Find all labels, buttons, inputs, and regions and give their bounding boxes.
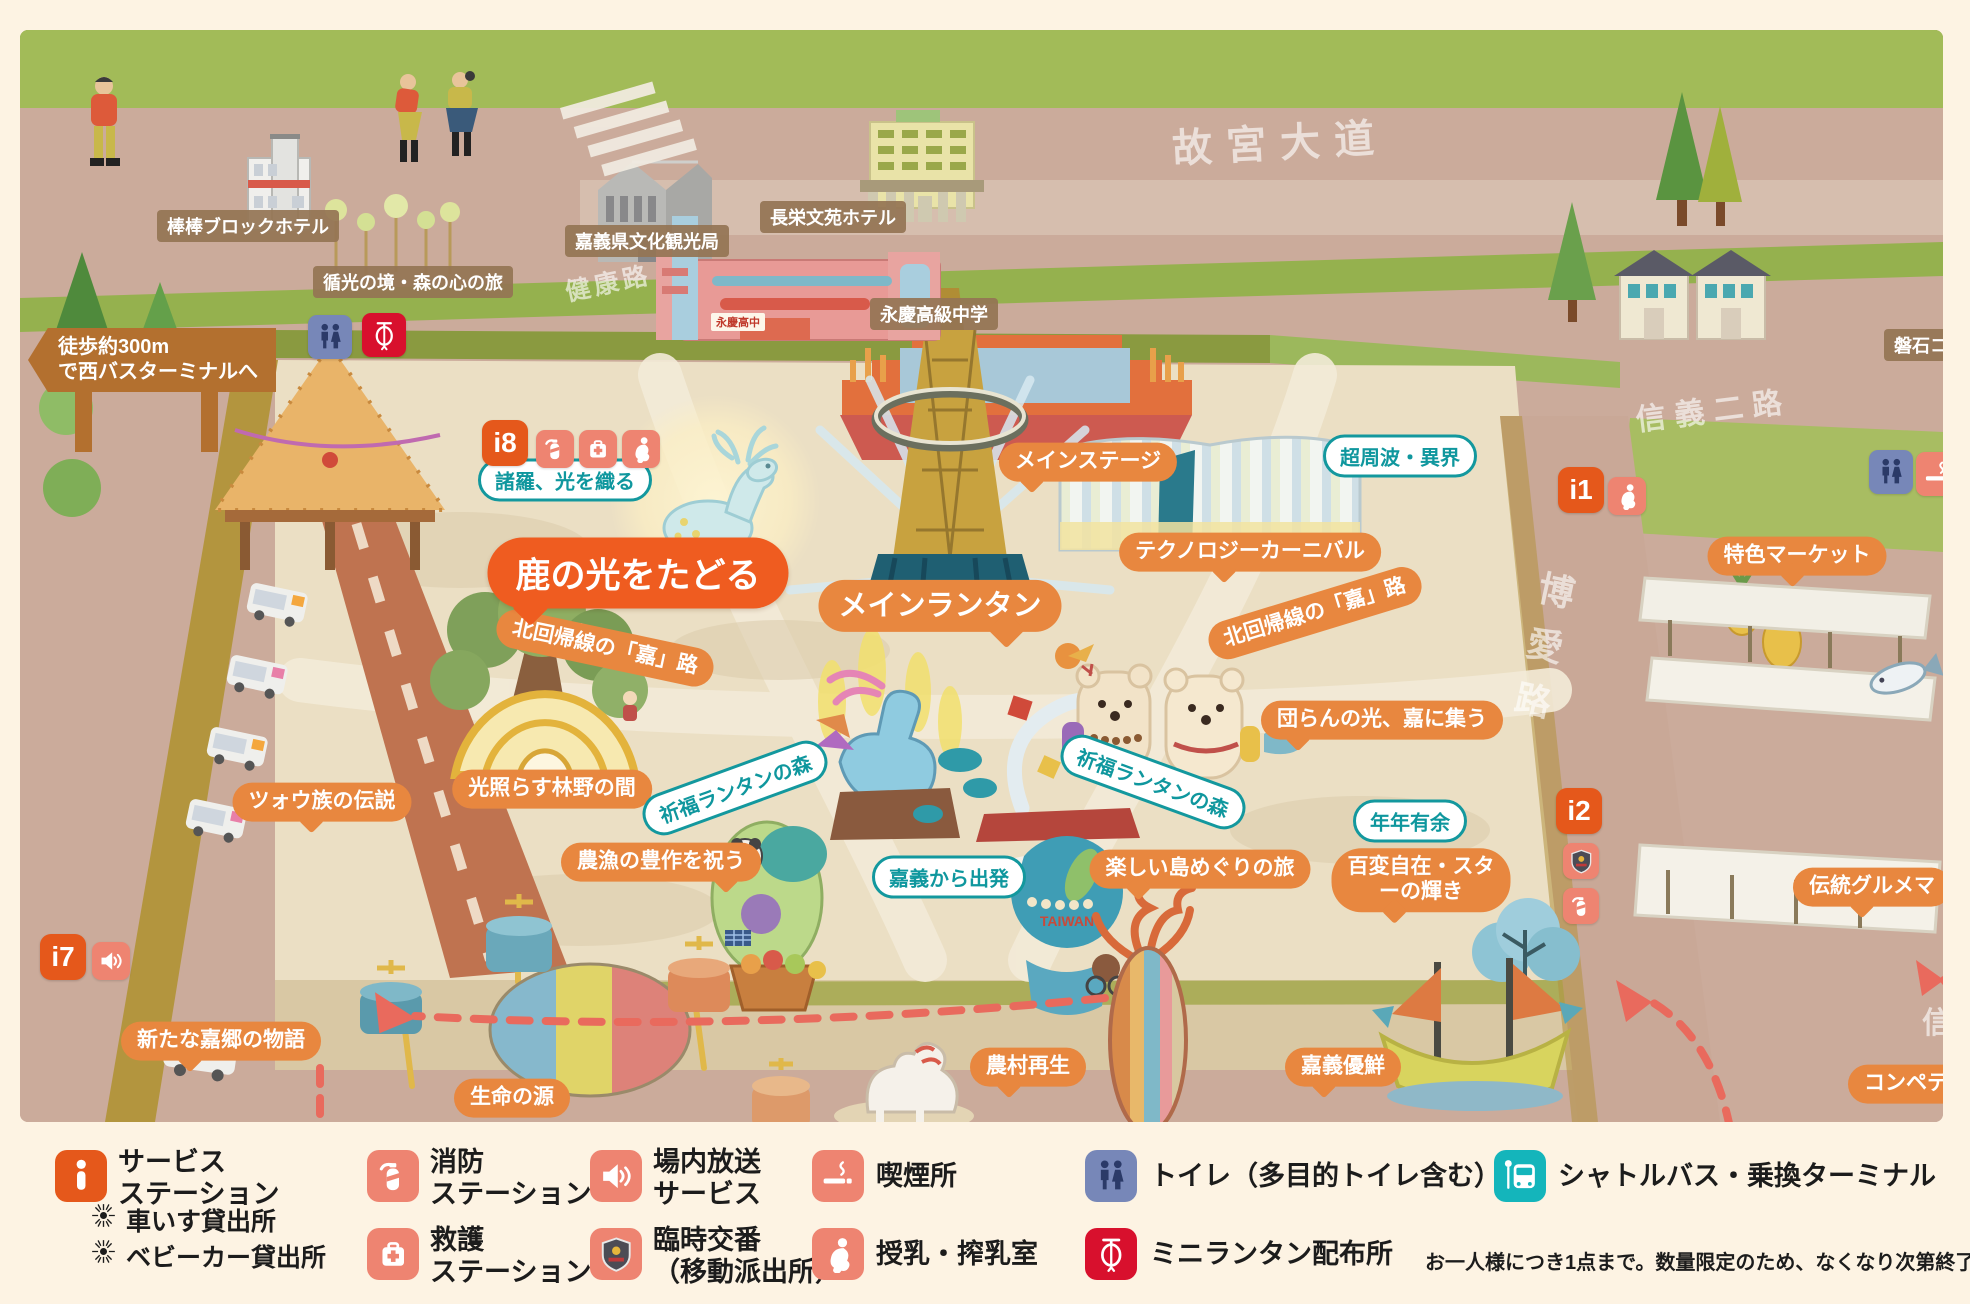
street-name-partial-right: 信	[1922, 998, 1943, 1042]
toilet-icon	[1869, 450, 1913, 494]
broadcast-speaker-icon	[92, 942, 130, 980]
fire-extinguisher-icon	[536, 430, 574, 468]
label-departure-from-chiayi: 嘉義から出発	[872, 856, 1026, 899]
school-rooftop-sign: 永慶高中	[711, 313, 765, 331]
smoking-area-legend-icon	[812, 1150, 864, 1202]
label-rural-rebirth: 農村再生	[970, 1048, 1086, 1087]
label-harvest-celebration: 農漁の豊作を祝う	[561, 843, 761, 882]
street-name-gugong-avenue: 故宮大道	[1171, 105, 1390, 174]
bus-sign-line1: 徒歩約300m	[58, 335, 276, 360]
label-tsou-legend: ツォウ族の伝説	[233, 783, 412, 822]
service-station-icon	[55, 1150, 107, 1202]
map-ground-art: TAIWAN	[20, 30, 1943, 1122]
police-box-icon	[1563, 843, 1599, 879]
legend-mini-lantern: ミニランタン配布所	[1150, 1238, 1393, 1270]
mini-lantern-icon	[362, 313, 406, 357]
legend-smoking-area: 喫煙所	[876, 1160, 957, 1192]
bus-sign-line2: で西バスターミナルへ	[58, 360, 276, 385]
temporary-police-box-icon	[590, 1228, 642, 1280]
bus-terminal-direction-sign: 徒歩約300m で西バスターミナルへ	[28, 328, 276, 392]
taiwan-globe-text: TAIWAN	[1040, 913, 1094, 929]
label-chiayi-yuxian: 嘉義優鮮	[1285, 1048, 1401, 1087]
label-ultra-frequency: 超周波・異界	[1323, 435, 1477, 478]
label-banseki-partial: 磐石コ	[1884, 329, 1943, 361]
legend-wheelchair-rental: 車いす貸出所	[126, 1202, 276, 1238]
info-station-badge-i8: i8	[482, 420, 528, 466]
label-competition: コンペテ	[1848, 1065, 1943, 1104]
label-culture-tourism-bureau: 嘉義県文化観光局	[565, 225, 729, 257]
legend-mini-lantern-note: お一人様につき1点まで。数量限定のため、なくなり次第終了となります。	[1425, 1246, 1970, 1275]
shuttle-bus-icon	[1494, 1150, 1546, 1202]
info-station-badge-i2: i2	[1556, 788, 1602, 834]
nursing-room-icon	[1608, 477, 1646, 515]
label-yearly-abundance: 年年有余	[1353, 800, 1467, 843]
mini-lantern-legend-icon	[1085, 1228, 1137, 1280]
fire-station-icon	[367, 1150, 419, 1202]
label-source-of-life: 生命の源	[454, 1079, 570, 1118]
broadcast-service-icon	[590, 1150, 642, 1202]
label-bangbang-hotel: 棒棒ブロックホテル	[157, 210, 339, 242]
smoking-area-icon	[1916, 452, 1943, 496]
nursing-room-icon	[622, 430, 660, 468]
label-light-forest-journey: 循光の境・森の心の旅	[313, 266, 513, 298]
legend-rescue-station: 救護 ステーション	[430, 1224, 591, 1289]
toilet-icon	[308, 315, 352, 359]
label-star-brilliance: 百変自在・スタ ーの輝き	[1332, 848, 1511, 912]
first-aid-icon	[579, 430, 617, 468]
legend-nursing-room: 授乳・搾乳室	[876, 1238, 1038, 1270]
legend-stroller-rental: ベビーカー貸出所	[126, 1238, 326, 1274]
label-reunion-light: 団らんの光、嘉に集う	[1261, 701, 1503, 740]
sign-leg	[201, 386, 218, 452]
label-yongqing-high-school: 永慶高級中学	[870, 298, 998, 330]
festival-map-page: TAIWAN	[0, 0, 1970, 1304]
info-station-badge-i1: i1	[1558, 467, 1604, 513]
stroller-rental-bullet-icon	[90, 1238, 117, 1265]
wheelchair-rental-bullet-icon	[90, 1202, 117, 1229]
fire-extinguisher-icon	[1563, 888, 1599, 924]
nursing-room-legend-icon	[812, 1228, 864, 1280]
label-island-tour: 楽しい島めぐりの旅	[1090, 850, 1311, 889]
rescue-station-icon	[367, 1228, 419, 1280]
map-legend: サービス ステーション 車いす貸出所 ベビーカー貸出所 消防 ステーション 救護…	[0, 1122, 1970, 1304]
illustrated-festival-map: TAIWAN	[20, 30, 1943, 1122]
label-traditional-gourmet: 伝統グルメマ	[1793, 868, 1943, 907]
label-new-kakyo-story: 新たな嘉郷の物語	[121, 1022, 321, 1061]
label-main-lantern: メインランタン	[818, 580, 1061, 632]
info-station-badge-i7: i7	[40, 934, 86, 980]
label-main-stage: メインステージ	[999, 443, 1177, 482]
label-technology-carnival: テクノロジーカーニバル	[1119, 533, 1381, 572]
legend-broadcast-service: 場内放送 サービス	[653, 1146, 761, 1211]
legend-toilet: トイレ（多目的トイレ含む）	[1150, 1160, 1501, 1192]
toilet-legend-icon	[1085, 1150, 1137, 1202]
sign-leg	[75, 386, 92, 452]
legend-fire-station: 消防 ステーション	[430, 1146, 591, 1211]
label-follow-deer-light: 鹿の光をたどる	[487, 538, 788, 609]
label-light-forest-hall: 光照らす林野の間	[452, 770, 652, 809]
legend-shuttle-bus: シャトルバス・乗換ターミナル	[1558, 1160, 1936, 1192]
label-choei-bunen-hotel: 長栄文苑ホテル	[760, 201, 906, 233]
top-grass-band	[20, 30, 1943, 108]
label-specialty-market: 特色マーケット	[1708, 537, 1887, 576]
